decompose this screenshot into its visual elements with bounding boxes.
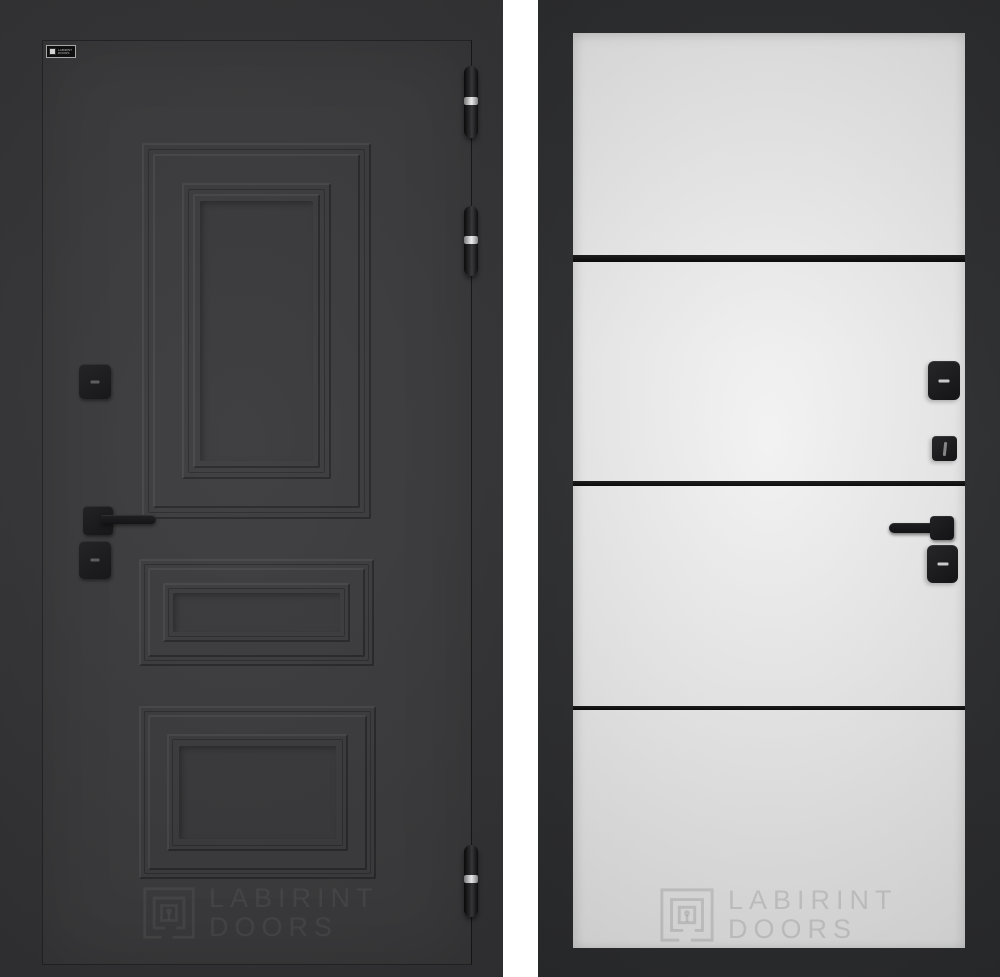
- watermark-text: LABIRINT DOORS: [728, 886, 898, 944]
- watermark-line2: DOORS: [209, 913, 379, 942]
- brand-badge-text: LABIRINT DOORS: [58, 48, 72, 54]
- deadbolt-escutcheon-lower: [79, 541, 111, 579]
- labyrinth-logo-icon: [49, 48, 56, 55]
- panel-molding-top: [142, 143, 371, 519]
- watermark-line2: DOORS: [728, 915, 898, 944]
- thumbturn-escutcheon-upper: [928, 361, 960, 400]
- brand-badge-line2: DOORS: [58, 52, 69, 55]
- watermark-line1: LABIRINT: [728, 886, 898, 915]
- brand-watermark-interior: LABIRINT DOORS: [658, 886, 898, 944]
- brand-badge: LABIRINT DOORS: [46, 45, 76, 58]
- door-handle-exterior: [101, 515, 156, 524]
- watermark-line1: LABIRINT: [209, 884, 379, 913]
- hinge-chrome-band: [464, 875, 478, 883]
- door-interior-photo: LABIRINT DOORS: [538, 0, 1000, 977]
- door-leaf-interior: LABIRINT DOORS: [573, 33, 965, 948]
- panel-field: [173, 593, 340, 632]
- panel-field: [179, 746, 336, 839]
- accent-stripe-1: [573, 255, 965, 262]
- watermark-text: LABIRINT DOORS: [209, 884, 379, 942]
- thumbturn-detail: [937, 563, 948, 566]
- accent-stripe-3: [573, 706, 965, 710]
- thumbturn-escutcheon-lower: [927, 545, 958, 583]
- key-cylinder-escutcheon: [932, 436, 957, 461]
- keyhole-detail: [91, 380, 100, 383]
- deadbolt-escutcheon-upper: [79, 364, 111, 399]
- door-exterior-photo: LABIRINT DOORS: [0, 0, 503, 977]
- panel-field: [200, 201, 313, 461]
- key-slot-detail: [942, 441, 946, 455]
- door-hinge-middle: [464, 206, 478, 276]
- keyhole-detail: [91, 559, 100, 562]
- thumbturn-detail: [939, 379, 950, 382]
- labyrinth-logo-icon: [658, 886, 716, 944]
- product-photo-doors: LABIRINT DOORS: [0, 0, 1000, 977]
- brand-watermark-exterior: LABIRINT DOORS: [141, 884, 379, 942]
- door-hinge-bottom: [464, 845, 478, 917]
- door-hinge-top: [464, 66, 478, 138]
- labyrinth-logo-icon: [141, 884, 197, 942]
- door-leaf-exterior: LABIRINT DOORS: [42, 40, 472, 965]
- panel-molding-bottom: [139, 706, 376, 879]
- handle-rosette-interior: [930, 516, 954, 540]
- accent-stripe-2: [573, 481, 965, 486]
- hinge-chrome-band: [464, 97, 478, 105]
- hinge-chrome-band: [464, 236, 478, 244]
- panel-molding-middle: [139, 559, 374, 666]
